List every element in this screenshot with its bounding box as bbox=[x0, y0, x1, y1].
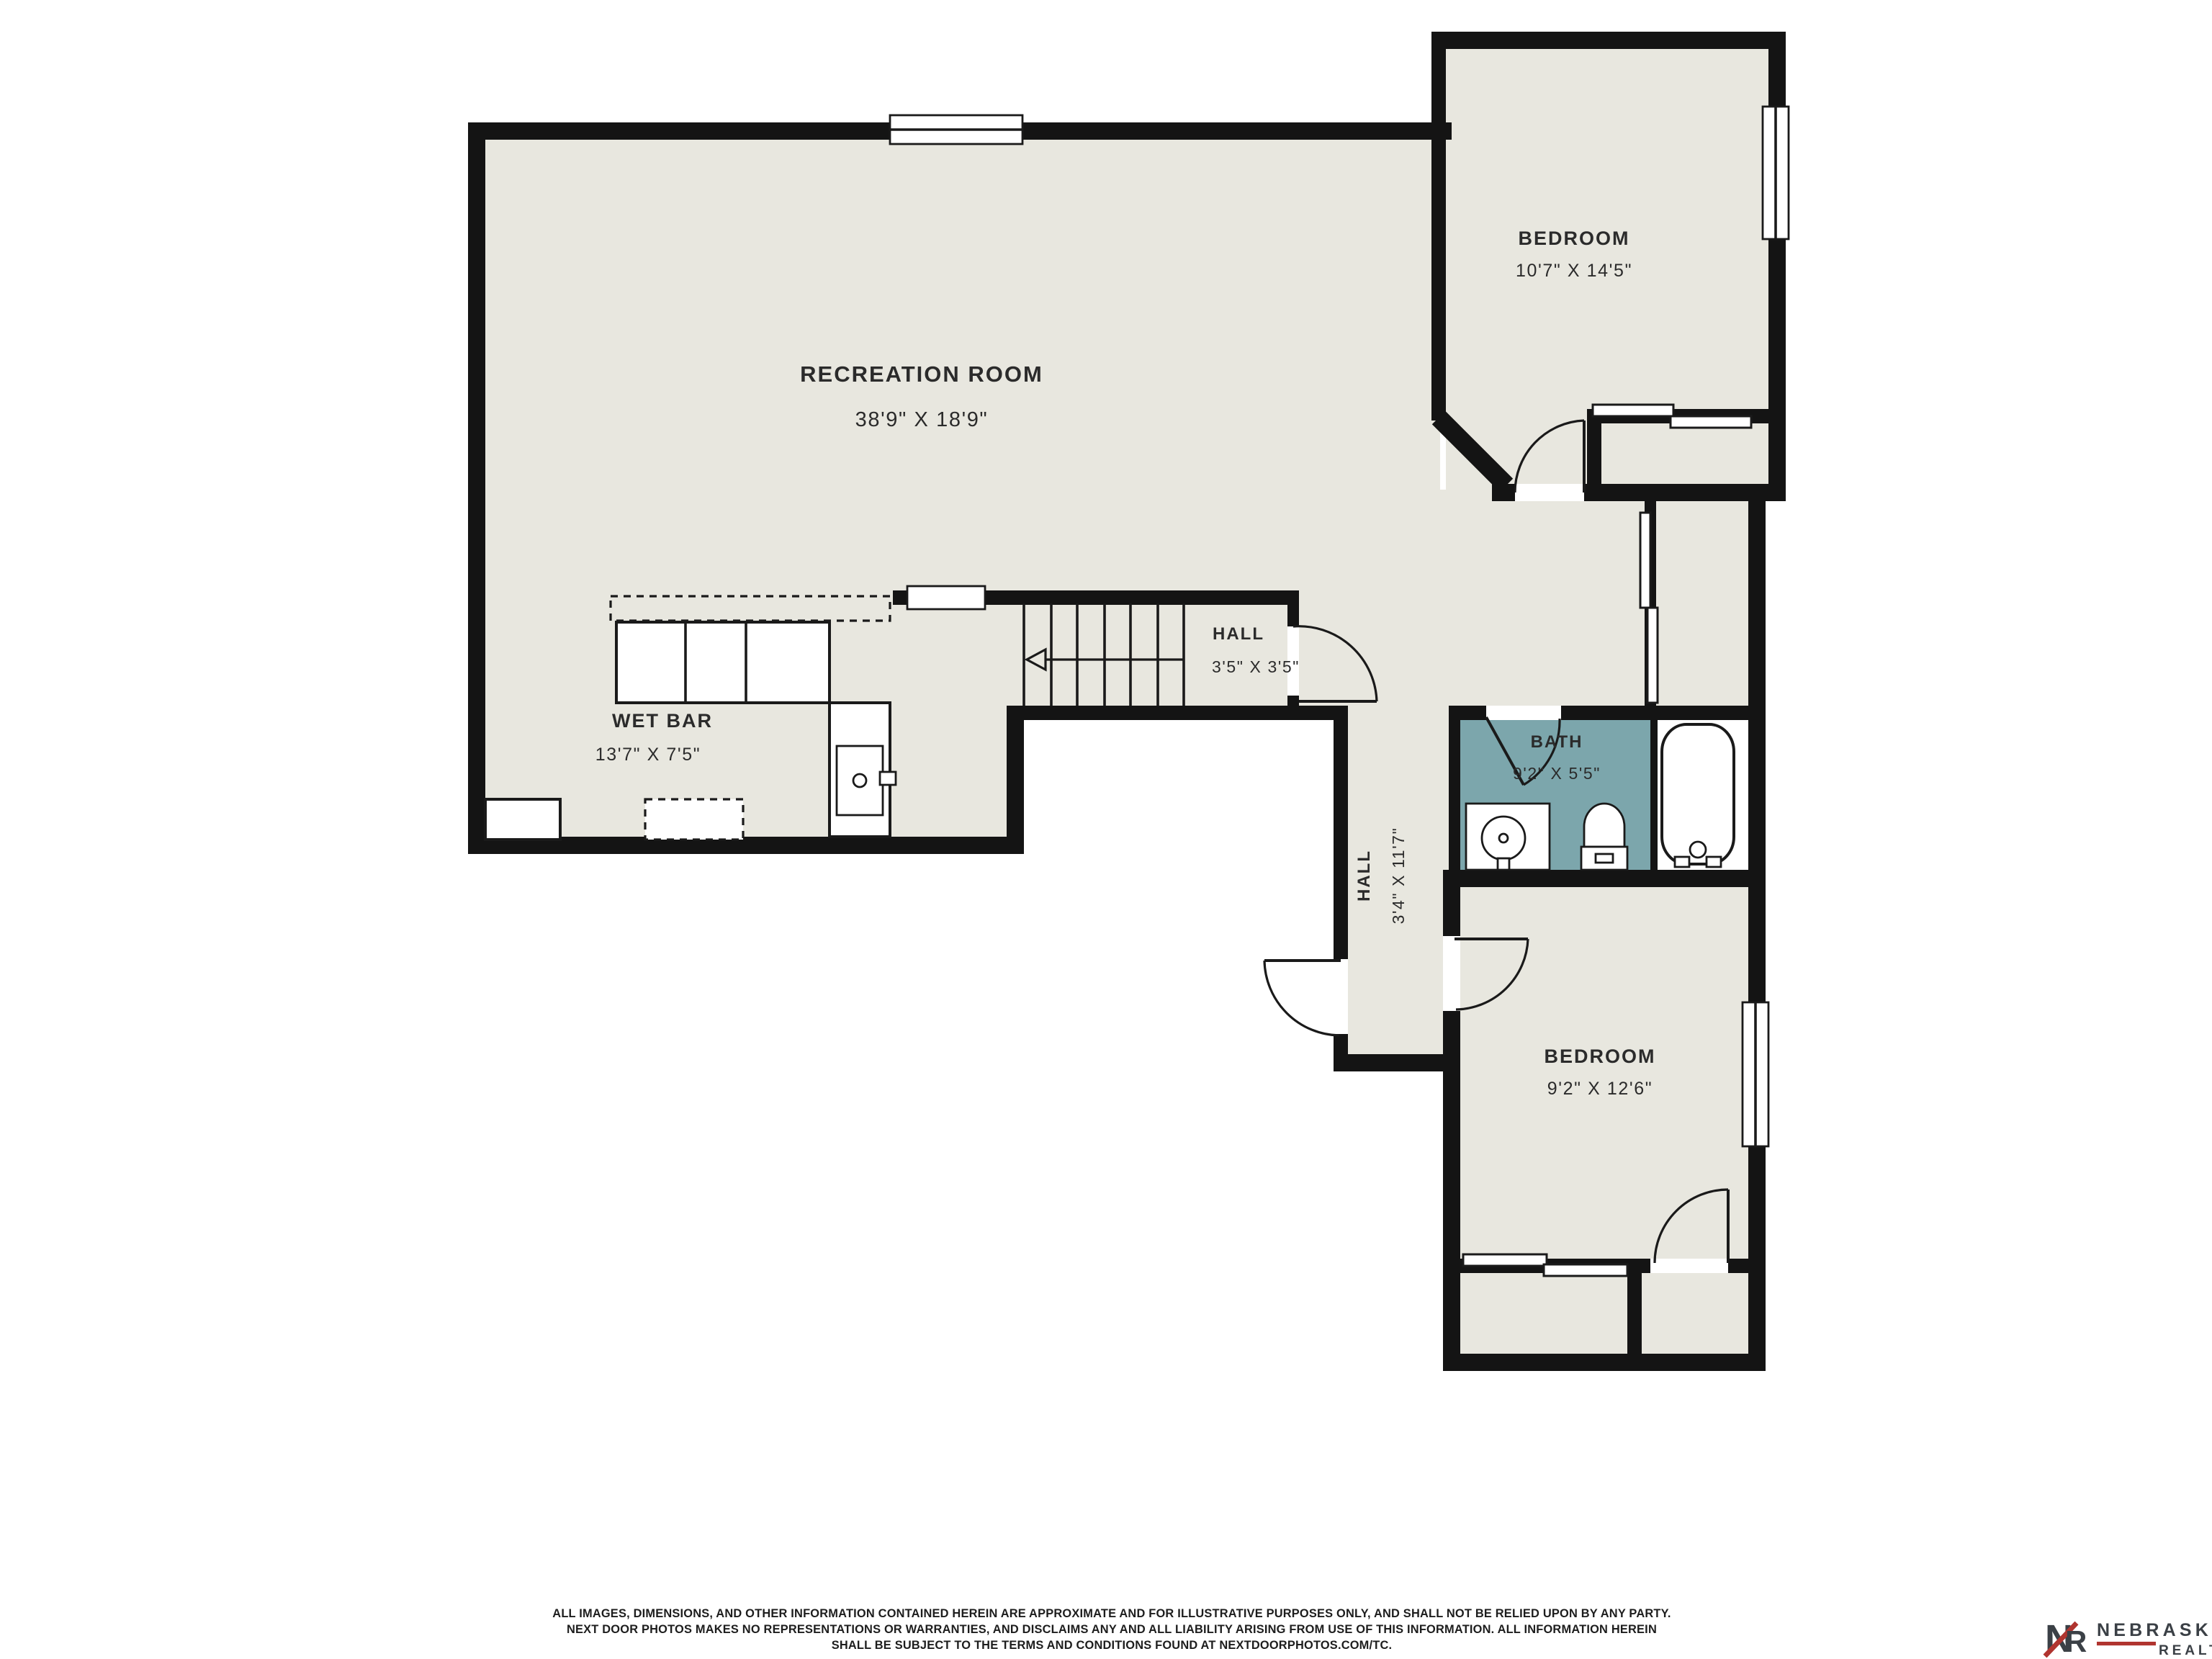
logo-name: NEBRASKA bbox=[2097, 1620, 2212, 1640]
bedroom-bottom-dims: 9'2" X 12'6" bbox=[1547, 1079, 1653, 1099]
unfinished-notch bbox=[1024, 717, 1348, 854]
bathtub bbox=[1662, 724, 1734, 867]
storage-room-floor bbox=[1650, 501, 1748, 717]
floor-plan-canvas: RECREATION ROOM 38'9" X 18'9" BEDROOM 10… bbox=[0, 0, 2212, 1659]
window-recreation-top bbox=[890, 115, 1022, 144]
wall-bedroom-top-top bbox=[1431, 32, 1786, 49]
hall-long-label: HALL bbox=[1354, 850, 1374, 902]
wall-stairs-top bbox=[985, 590, 1299, 605]
recreation-room-fixture bbox=[485, 799, 560, 840]
wall-hall-long-left-a bbox=[1334, 706, 1348, 959]
recreation-room-dims: 38'9" X 18'9" bbox=[855, 408, 989, 431]
logo-subtitle: REALTY bbox=[2159, 1643, 2212, 1658]
wet-bar-dishwasher bbox=[645, 799, 743, 840]
wall-stair-hall-right-upper bbox=[1287, 590, 1299, 626]
logo-underline bbox=[2097, 1642, 2156, 1645]
bedroom-bottom-label: BEDROOM bbox=[1545, 1046, 1656, 1067]
bath-dims: 9'2" X 5'5" bbox=[1513, 764, 1601, 783]
wall-bedroom-top-left bbox=[1431, 32, 1446, 421]
hall-small-dims: 3'5" X 3'5" bbox=[1212, 657, 1300, 676]
bedroom-top-label: BEDROOM bbox=[1519, 228, 1630, 249]
wall-hall-long-bottom bbox=[1334, 1054, 1460, 1071]
corridor-floor bbox=[1440, 490, 1650, 717]
wall-stair-hall-right-lower bbox=[1287, 696, 1299, 720]
wall-bedroom-bottom-left-a bbox=[1443, 881, 1460, 936]
window-bedroom-bottom-right bbox=[1743, 1002, 1768, 1146]
wet-bar-upper-cabinets bbox=[611, 596, 890, 621]
wall-notch-left bbox=[1007, 706, 1024, 854]
opening-above-wet-bar bbox=[907, 586, 985, 609]
wet-bar-dims: 13'7" X 7'5" bbox=[595, 745, 701, 765]
hall-small-label: HALL bbox=[1213, 624, 1264, 644]
disclaimer-line-2: NEXT DOOR PHOTOS MAKES NO REPRESENTATION… bbox=[567, 1623, 1657, 1636]
disclaimer-line-3: SHALL BE SUBJECT TO THE TERMS AND CONDIT… bbox=[832, 1639, 1393, 1652]
wall-bath-bottom bbox=[1443, 870, 1766, 887]
nebraska-realty-logo: N R NEBRASKA REALTY bbox=[2045, 1617, 2212, 1659]
hall-long-dims: 3'4" X 11'7" bbox=[1389, 827, 1408, 925]
wall-closet-divider bbox=[1627, 1264, 1642, 1359]
wall-closet-left bbox=[1587, 409, 1601, 501]
bedroom-bottom-floor bbox=[1460, 887, 1748, 1267]
wall-exterior-left bbox=[468, 122, 485, 854]
wall-bedroom-top-bottom-a bbox=[1492, 484, 1515, 501]
wall-exterior-bottom bbox=[1443, 1354, 1766, 1371]
wall-bedroom-bottom-bottom-b bbox=[1728, 1259, 1766, 1273]
wet-bar-counter bbox=[616, 622, 829, 703]
bath-vanity bbox=[1466, 804, 1550, 870]
bath-label: BATH bbox=[1531, 732, 1583, 752]
disclaimer-line-1: ALL IMAGES, DIMENSIONS, AND OTHER INFORM… bbox=[552, 1607, 1671, 1620]
wall-bedroom-top-right bbox=[1768, 32, 1786, 501]
window-bedroom-top-right bbox=[1763, 107, 1789, 239]
bedroom-top-dims: 10'7" X 14'5" bbox=[1516, 261, 1632, 281]
wet-bar-label: WET BAR bbox=[612, 710, 713, 732]
wall-bedroom-bottom-left-b bbox=[1443, 1011, 1460, 1371]
recreation-room-label: RECREATION ROOM bbox=[800, 361, 1043, 387]
logo-nr-monogram-icon: N R bbox=[2045, 1617, 2087, 1659]
footer-disclaimer: ALL IMAGES, DIMENSIONS, AND OTHER INFORM… bbox=[552, 1607, 1671, 1652]
wall-storage-right bbox=[1748, 501, 1766, 717]
wall-bath-top-a bbox=[1460, 706, 1486, 720]
floor-plan-page: RECREATION ROOM 38'9" X 18'9" BEDROOM 10… bbox=[0, 0, 2212, 1659]
wall-tub-divider bbox=[1650, 717, 1658, 870]
toilet bbox=[1581, 804, 1627, 870]
logo-letter-r: R bbox=[2065, 1624, 2087, 1658]
wall-bath-top-b bbox=[1561, 706, 1766, 720]
wall-bath-left bbox=[1449, 706, 1460, 887]
wall-bedroom-top-bottom-b bbox=[1584, 484, 1786, 501]
door-hall-to-unfinished bbox=[1264, 959, 1348, 1035]
